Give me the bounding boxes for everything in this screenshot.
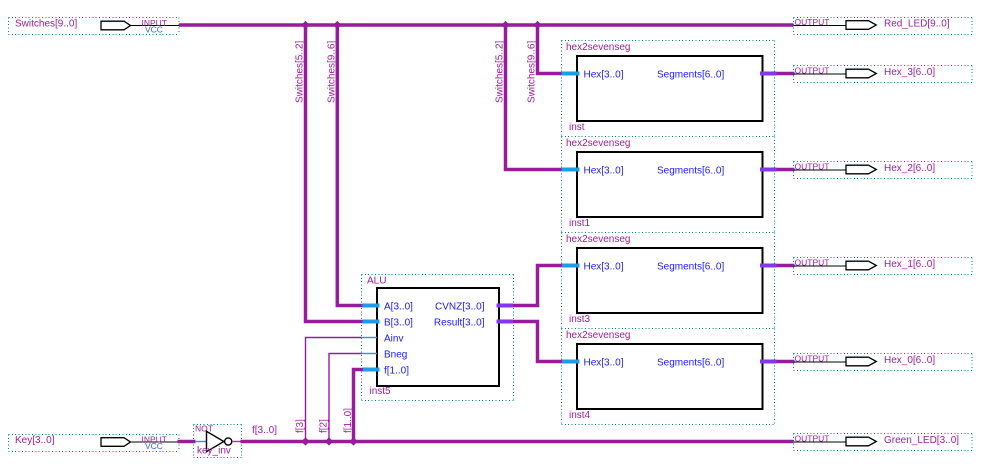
svg-text:Key[3..0]: Key[3..0] (15, 435, 55, 446)
svg-text:key_inv: key_inv (197, 446, 231, 457)
svg-text:Segments[6..0]: Segments[6..0] (657, 262, 724, 273)
svg-text:Ainv: Ainv (384, 334, 403, 345)
svg-text:hex2sevenseg: hex2sevenseg (566, 330, 631, 341)
svg-text:Hex_3[6..0]: Hex_3[6..0] (884, 67, 935, 78)
svg-text:Switches[9..6]: Switches[9..6] (326, 41, 337, 103)
svg-text:Hex_2[6..0]: Hex_2[6..0] (884, 163, 935, 174)
svg-text:hex2sevenseg: hex2sevenseg (566, 234, 631, 245)
svg-text:hex2sevenseg: hex2sevenseg (566, 138, 631, 149)
svg-text:hex2sevenseg: hex2sevenseg (566, 42, 631, 53)
svg-text:Green_LED[3..0]: Green_LED[3..0] (884, 435, 959, 446)
svg-text:Hex[3..0]: Hex[3..0] (584, 358, 624, 369)
svg-text:Red_LED[9..0]: Red_LED[9..0] (884, 19, 950, 30)
svg-text:Result[3..0]: Result[3..0] (434, 318, 485, 329)
svg-text:inst4: inst4 (569, 410, 591, 421)
svg-text:CVNZ[3..0]: CVNZ[3..0] (435, 302, 485, 313)
svg-text:Switches[9..0]: Switches[9..0] (15, 19, 77, 30)
svg-text:VCC: VCC (145, 441, 163, 451)
svg-text:Switches[5..2]: Switches[5..2] (495, 41, 506, 103)
svg-text:inst3: inst3 (569, 314, 591, 325)
svg-text:A[3..0]: A[3..0] (384, 302, 413, 313)
svg-text:f[1..0]: f[1..0] (343, 408, 354, 433)
svg-text:Bneg: Bneg (384, 350, 407, 361)
svg-text:NOT: NOT (195, 424, 213, 434)
svg-text:Switches[9..6]: Switches[9..6] (527, 41, 538, 103)
svg-text:f[2]: f[2] (319, 419, 330, 433)
svg-text:Hex_1[6..0]: Hex_1[6..0] (884, 259, 935, 270)
svg-text:VCC: VCC (145, 24, 163, 34)
svg-text:Switches[5..2]: Switches[5..2] (295, 41, 306, 103)
svg-text:Hex[3..0]: Hex[3..0] (584, 262, 624, 273)
svg-text:f[1..0]: f[1..0] (384, 366, 409, 377)
svg-text:inst5: inst5 (370, 386, 392, 397)
svg-text:inst: inst (569, 122, 585, 133)
svg-text:f[3]: f[3] (295, 419, 306, 433)
svg-text:Segments[6..0]: Segments[6..0] (657, 70, 724, 81)
svg-text:Hex[3..0]: Hex[3..0] (584, 166, 624, 177)
svg-text:Hex_0[6..0]: Hex_0[6..0] (884, 355, 935, 366)
svg-text:Segments[6..0]: Segments[6..0] (657, 358, 724, 369)
svg-text:ALU: ALU (367, 276, 386, 287)
svg-text:Segments[6..0]: Segments[6..0] (657, 166, 724, 177)
svg-text:B[3..0]: B[3..0] (384, 318, 413, 329)
svg-text:f[3..0]: f[3..0] (252, 425, 277, 436)
svg-text:Hex[3..0]: Hex[3..0] (584, 70, 624, 81)
svg-text:inst1: inst1 (569, 218, 591, 229)
